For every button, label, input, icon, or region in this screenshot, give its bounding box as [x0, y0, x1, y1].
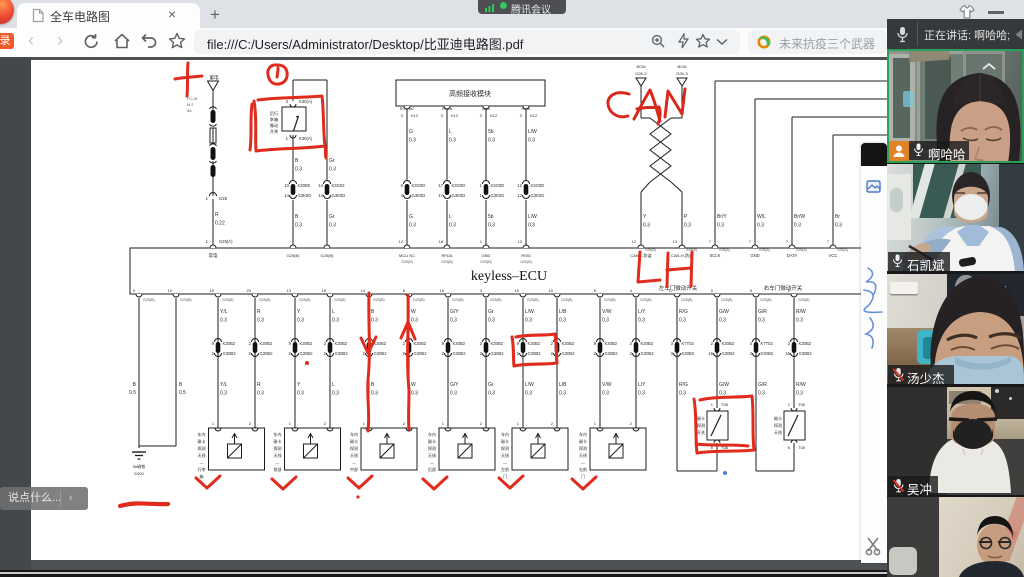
svg-text:G2E: G2E: [219, 196, 228, 201]
svg-text:13: 13: [673, 239, 678, 244]
svg-text:9: 9: [750, 288, 753, 293]
svg-text:0.3: 0.3: [758, 318, 765, 324]
svg-text:Y: Y: [643, 214, 647, 220]
svg-text:Y: Y: [297, 382, 301, 388]
svg-text:0.3: 0.3: [409, 138, 416, 144]
svg-text:Y: Y: [297, 309, 301, 315]
svg-text:G30B2: G30B2: [453, 351, 467, 356]
svg-text:K3G0D: K3G0D: [491, 183, 505, 188]
svg-text:K30B2: K30B2: [414, 341, 427, 346]
svg-text:前部: 前部: [274, 466, 282, 472]
svg-text:R/W: R/W: [796, 309, 806, 315]
svg-text:探测: 探测: [350, 445, 358, 451]
svg-text:1: 1: [206, 196, 209, 201]
svg-text:磁卡: 磁卡: [579, 438, 587, 444]
svg-text:0.3: 0.3: [450, 318, 457, 324]
svg-text:0.3: 0.3: [329, 167, 336, 173]
svg-text:3: 3: [520, 113, 523, 118]
svg-text:0.3: 0.3: [329, 223, 336, 229]
svg-text:L: L: [449, 129, 452, 135]
svg-text:V/W: V/W: [602, 309, 612, 315]
svg-text:1: 1: [480, 239, 483, 244]
svg-text:G30B2: G30B2: [641, 351, 655, 356]
svg-text:3: 3: [286, 99, 289, 104]
svg-text:0.3: 0.3: [684, 223, 691, 229]
svg-text:12: 12: [632, 239, 637, 244]
svg-text:G30B2: G30B2: [223, 351, 237, 356]
svg-text:磁卡: 磁卡: [774, 415, 782, 421]
svg-text:G25(B): G25(B): [180, 298, 192, 302]
svg-text:G25(B): G25(B): [401, 260, 413, 264]
svg-text:8: 8: [403, 288, 406, 293]
svg-text:G25(A): G25(A): [837, 248, 848, 252]
svg-text:G25(A): G25(A): [219, 239, 233, 244]
svg-text:G25(B): G25(B): [373, 298, 385, 302]
svg-text:0.5: 0.5: [179, 390, 186, 396]
svg-text:12: 12: [517, 183, 522, 188]
svg-text:G3K0D: G3K0D: [452, 193, 466, 198]
svg-text:G25(B): G25(B): [721, 298, 733, 302]
svg-text:K12: K12: [411, 113, 419, 118]
svg-text:14: 14: [284, 193, 289, 198]
svg-text:12: 12: [399, 239, 404, 244]
svg-text:T08: T08: [798, 402, 806, 407]
svg-text:0.3: 0.3: [525, 318, 532, 324]
svg-text:天线: 天线: [774, 429, 782, 435]
svg-text:0.3: 0.3: [643, 223, 650, 229]
svg-text:G25(A): G25(A): [719, 248, 730, 252]
svg-text:G30B2: G30B2: [335, 351, 349, 356]
svg-text:G25(B): G25(B): [520, 260, 532, 264]
svg-text:天线: 天线: [579, 452, 587, 458]
svg-text:K12: K12: [530, 113, 538, 118]
svg-text:K30B2: K30B2: [223, 341, 236, 346]
svg-text:Gr: Gr: [329, 214, 335, 220]
svg-text:后行: 后行: [270, 110, 278, 117]
svg-text:中部: 中部: [350, 466, 358, 472]
svg-text:GND: GND: [482, 253, 491, 258]
svg-text:7: 7: [827, 239, 830, 244]
svg-text:磁卡: 磁卡: [428, 438, 436, 444]
svg-text:RFDA: RFDA: [442, 253, 453, 258]
svg-text:K30B2: K30B2: [453, 341, 466, 346]
svg-text:K3G0D: K3G0D: [531, 183, 545, 188]
svg-text:G25(A): G25(A): [796, 248, 807, 252]
svg-text:R: R: [215, 212, 219, 218]
svg-text:3: 3: [480, 288, 483, 293]
svg-text:1: 1: [206, 239, 209, 244]
svg-text:0.3: 0.3: [449, 223, 456, 229]
svg-text:4: 4: [630, 288, 633, 293]
svg-text:天线: 天线: [198, 452, 206, 458]
svg-text:R/W: R/W: [796, 382, 806, 388]
svg-text:天线: 天线: [350, 452, 358, 458]
svg-text:L: L: [332, 382, 335, 388]
svg-text:5A: 5A: [187, 109, 192, 113]
svg-text:keyless–ECU: keyless–ECU: [471, 269, 547, 284]
svg-text:G30B2: G30B2: [528, 351, 542, 356]
svg-text:P: P: [684, 214, 688, 220]
svg-text:L/Y: L/Y: [638, 382, 646, 388]
svg-text:G25(B): G25(B): [640, 298, 652, 302]
svg-text:18: 18: [322, 288, 327, 293]
svg-text:6: 6: [788, 445, 791, 450]
svg-text:RSSI: RSSI: [521, 253, 530, 258]
svg-text:B: B: [371, 309, 375, 315]
svg-text:15: 15: [440, 288, 445, 293]
svg-text:G/Y: G/Y: [450, 382, 459, 388]
svg-text:17: 17: [438, 183, 443, 188]
svg-text:1: 1: [517, 421, 520, 426]
svg-text:开关: 开关: [697, 429, 705, 435]
svg-text:G: G: [409, 129, 413, 135]
svg-text:0.3: 0.3: [411, 391, 418, 397]
svg-text:0.3: 0.3: [409, 223, 416, 229]
svg-text:0.3: 0.3: [559, 318, 566, 324]
svg-text:1: 1: [594, 421, 597, 426]
svg-text:0.3: 0.3: [719, 391, 726, 397]
svg-text:DATA: DATA: [787, 253, 798, 258]
svg-text:Gr: Gr: [488, 309, 494, 315]
svg-text:G25(B): G25(B): [441, 260, 453, 264]
svg-text:左前: 左前: [501, 466, 509, 472]
svg-text:G30B2: G30B2: [374, 351, 388, 356]
svg-text:K30B0: K30B0: [298, 183, 311, 188]
svg-text:车内: 车内: [350, 431, 358, 437]
svg-text:B: B: [295, 158, 299, 164]
svg-text:—: —: [200, 460, 204, 465]
svg-text:K12: K12: [451, 113, 459, 118]
svg-text:0.3: 0.3: [295, 167, 302, 173]
svg-text:李箱: 李箱: [270, 116, 278, 123]
svg-text:K30B2: K30B2: [605, 341, 618, 346]
svg-text:2: 2: [403, 421, 406, 426]
svg-text:18: 18: [439, 239, 444, 244]
svg-text:13: 13: [287, 288, 292, 293]
svg-text:0.3: 0.3: [525, 391, 532, 397]
svg-text:R: R: [257, 309, 261, 315]
svg-text:5: 5: [711, 288, 714, 293]
svg-text:W: W: [411, 309, 416, 315]
svg-text:1: 1: [363, 421, 366, 426]
svg-text:2: 2: [249, 421, 252, 426]
svg-text:VCC: VCC: [829, 253, 838, 258]
svg-text:L/W: L/W: [525, 382, 534, 388]
svg-text:CAN-H-防盗: CAN-H-防盗: [671, 252, 693, 258]
svg-text:G25(B): G25(B): [287, 253, 301, 258]
svg-text:SCLK: SCLK: [710, 253, 721, 258]
svg-text:右前: 右前: [579, 466, 587, 472]
svg-text:0.3: 0.3: [297, 391, 304, 397]
svg-text:—: —: [581, 460, 585, 465]
svg-text:Br/Y: Br/Y: [717, 214, 727, 220]
svg-text:B: B: [371, 382, 375, 388]
svg-text:3: 3: [441, 113, 444, 118]
svg-text:1: 1: [442, 421, 445, 426]
svg-text:12: 12: [517, 193, 522, 198]
svg-text:W: W: [411, 382, 416, 388]
svg-text:G25(B): G25(B): [561, 298, 573, 302]
svg-text:Gr: Gr: [488, 382, 494, 388]
svg-text:K30B2: K30B2: [528, 341, 541, 346]
svg-text:—: —: [276, 460, 280, 465]
svg-text:探测: 探测: [697, 422, 705, 428]
svg-text:2: 2: [630, 421, 633, 426]
svg-text:R/G: R/G: [679, 309, 688, 315]
svg-text:E400: E400: [134, 471, 144, 476]
svg-text:0.3: 0.3: [449, 138, 456, 144]
svg-text:0.3: 0.3: [371, 318, 378, 324]
svg-text:车内: 车内: [579, 431, 587, 437]
svg-text:L/W: L/W: [528, 129, 537, 135]
svg-text:10: 10: [168, 288, 173, 293]
svg-text:FC-04: FC-04: [187, 97, 198, 101]
svg-text:磁卡: 磁卡: [274, 438, 282, 444]
svg-text:10: 10: [284, 183, 289, 188]
svg-text:K30B2: K30B2: [562, 341, 575, 346]
svg-text:天线: 天线: [274, 452, 282, 458]
svg-text:GND: GND: [750, 253, 759, 258]
svg-text:K3G0D: K3G0D: [452, 183, 466, 188]
svg-text:10: 10: [549, 288, 554, 293]
svg-text:G25(B): G25(B): [413, 298, 425, 302]
svg-text:5b: 5b: [488, 214, 494, 220]
svg-text:G25(B): G25(B): [681, 298, 693, 302]
svg-text:0.3: 0.3: [332, 318, 339, 324]
svg-text:G25(B): G25(B): [527, 298, 539, 302]
svg-text:0.3: 0.3: [796, 318, 803, 324]
svg-text:0.3: 0.3: [719, 318, 726, 324]
svg-text:G30B2: G30B2: [722, 351, 736, 356]
svg-text:—: —: [503, 460, 507, 465]
svg-text:W/L: W/L: [757, 214, 766, 220]
svg-text:K30(A): K30(A): [299, 136, 313, 141]
svg-text:0.3: 0.3: [794, 223, 801, 229]
svg-text:G25(B): G25(B): [143, 298, 155, 302]
svg-text:箱: 箱: [200, 473, 204, 479]
svg-text:磁卡: 磁卡: [350, 438, 358, 444]
svg-text:探测: 探测: [579, 445, 587, 451]
svg-text:G30B2: G30B2: [300, 351, 314, 356]
svg-text:17: 17: [438, 193, 443, 198]
svg-text:K12: K12: [490, 113, 498, 118]
svg-text:1: 1: [212, 421, 215, 426]
svg-text:0.3: 0.3: [835, 223, 842, 229]
svg-text:G2K-3: G2K-3: [676, 71, 688, 76]
svg-text:G/R: G/R: [758, 309, 767, 315]
svg-text:G25(B): G25(B): [645, 248, 656, 252]
svg-text:0.3: 0.3: [332, 391, 339, 397]
svg-text:13: 13: [518, 239, 523, 244]
svg-text:0.3: 0.3: [257, 318, 264, 324]
svg-text:G2K-2: G2K-2: [635, 71, 647, 76]
svg-text:G25(B): G25(B): [321, 253, 335, 258]
svg-text:车内: 车内: [274, 431, 282, 437]
svg-text:磁卡: 磁卡: [198, 438, 206, 444]
svg-text:L: L: [449, 214, 452, 220]
svg-text:20: 20: [247, 288, 252, 293]
svg-text:G25(B): G25(B): [259, 298, 271, 302]
svg-text:微动: 微动: [270, 122, 278, 129]
svg-text:R: R: [257, 382, 261, 388]
svg-text:G30B2: G30B2: [491, 351, 505, 356]
svg-text:0.3: 0.3: [638, 318, 645, 324]
svg-text:1: 1: [286, 136, 289, 141]
svg-text:8: 8: [594, 288, 597, 293]
svg-text:门: 门: [503, 473, 507, 479]
svg-text:T08: T08: [798, 445, 806, 450]
svg-text:G25(B): G25(B): [604, 298, 616, 302]
svg-text:常电: 常电: [209, 252, 218, 259]
svg-text:0.3: 0.3: [717, 223, 724, 229]
svg-text:Gr: Gr: [329, 158, 335, 164]
svg-text:探测: 探测: [274, 445, 282, 451]
svg-text:车内: 车内: [198, 431, 206, 437]
svg-text:G/W: G/W: [719, 309, 729, 315]
svg-text:高频接收模块: 高频接收模块: [449, 89, 491, 98]
svg-text:0.3: 0.3: [758, 391, 765, 397]
svg-text:蓄电: 蓄电: [210, 74, 219, 81]
svg-text:K30B2: K30B2: [641, 341, 654, 346]
svg-text:0.3: 0.3: [488, 138, 495, 144]
svg-text:天线: 天线: [501, 452, 509, 458]
svg-text:G/Y: G/Y: [450, 309, 459, 315]
svg-text:0.3: 0.3: [220, 318, 227, 324]
svg-text:19: 19: [210, 288, 215, 293]
svg-text:14: 14: [318, 193, 323, 198]
svg-text:L/W: L/W: [528, 214, 537, 220]
svg-text:探测: 探测: [198, 445, 206, 451]
svg-text:15: 15: [515, 288, 520, 293]
svg-text:G3K0D: G3K0D: [332, 193, 346, 198]
svg-text:G25(B): G25(B): [480, 260, 492, 264]
svg-text:G3K0D: G3K0D: [491, 193, 505, 198]
svg-text:后部: 后部: [428, 466, 436, 472]
svg-text:3: 3: [480, 113, 483, 118]
svg-text:0.3: 0.3: [757, 223, 764, 229]
svg-text:K30B2: K30B2: [722, 341, 735, 346]
svg-text:L/Y: L/Y: [638, 309, 646, 315]
svg-text:探测: 探测: [501, 445, 509, 451]
svg-text:K30B2: K30B2: [260, 341, 273, 346]
svg-text:车内: 车内: [428, 431, 436, 437]
svg-text:0.5: 0.5: [129, 390, 136, 396]
svg-text:L/B: L/B: [559, 309, 567, 315]
svg-text:磁卡: 磁卡: [501, 438, 509, 444]
svg-text:0.3: 0.3: [528, 138, 535, 144]
svg-text:G3K0D: G3K0D: [412, 193, 426, 198]
svg-text:K30B2: K30B2: [374, 341, 387, 346]
svg-text:B: B: [179, 382, 183, 388]
svg-text:0.3: 0.3: [488, 318, 495, 324]
svg-text:探测: 探测: [774, 422, 782, 428]
svg-text:0.3: 0.3: [371, 391, 378, 397]
svg-text:G25(B): G25(B): [334, 298, 346, 302]
svg-text:K3G0D: K3G0D: [412, 183, 426, 188]
svg-text:0.3: 0.3: [796, 391, 803, 397]
svg-text:G25(B): G25(B): [452, 298, 464, 302]
svg-text:0.3: 0.3: [488, 223, 495, 229]
svg-text:BCM: BCM: [637, 64, 646, 69]
svg-text:磁卡: 磁卡: [697, 415, 705, 421]
svg-text:G30B2: G30B2: [562, 351, 576, 356]
svg-text:5#磁铁: 5#磁铁: [133, 463, 145, 469]
svg-text:0.3: 0.3: [411, 318, 418, 324]
svg-text:2: 2: [324, 421, 327, 426]
svg-text:0.3: 0.3: [450, 391, 457, 397]
svg-text:G30B2: G30B2: [414, 351, 428, 356]
svg-text:0.3: 0.3: [528, 223, 535, 229]
svg-text:K30B2: K30B2: [335, 341, 348, 346]
svg-text:7: 7: [786, 239, 789, 244]
svg-text:K3G02: K3G02: [332, 183, 346, 188]
svg-text:14: 14: [361, 288, 366, 293]
svg-text:3: 3: [401, 113, 404, 118]
svg-text:14: 14: [318, 183, 323, 188]
svg-text:9: 9: [133, 288, 136, 293]
svg-text:16: 16: [708, 351, 713, 356]
svg-text:门: 门: [581, 473, 585, 479]
svg-text:—: —: [430, 460, 434, 465]
svg-text:1: 1: [289, 421, 292, 426]
svg-text:Br: Br: [835, 214, 840, 220]
svg-text:1: 1: [788, 402, 791, 407]
svg-text:0.3: 0.3: [602, 391, 609, 397]
svg-text:7: 7: [709, 239, 712, 244]
svg-text:L/W: L/W: [525, 309, 534, 315]
svg-text:0.3: 0.3: [297, 318, 304, 324]
svg-text:T08: T08: [721, 402, 729, 407]
svg-text:0.3: 0.3: [559, 391, 566, 397]
svg-text:L: L: [332, 309, 335, 315]
svg-text:0.22: 0.22: [215, 221, 225, 227]
svg-text:BCM: BCM: [678, 64, 687, 69]
svg-text:Br/W: Br/W: [794, 214, 805, 220]
svg-text:16: 16: [785, 351, 790, 356]
svg-text:B: B: [133, 382, 137, 388]
svg-text:K7T02: K7T02: [761, 341, 774, 346]
svg-text:G25(B): G25(B): [490, 298, 502, 302]
svg-text:G3K0D: G3K0D: [531, 193, 545, 198]
svg-text:0.3: 0.3: [295, 223, 302, 229]
svg-text:G/W: G/W: [719, 382, 729, 388]
svg-text:G: G: [409, 214, 413, 220]
svg-text:0.3: 0.3: [679, 391, 686, 397]
svg-text:G25(A): G25(A): [759, 248, 770, 252]
svg-text:G25(B): G25(B): [299, 298, 311, 302]
svg-text:2: 2: [551, 421, 554, 426]
svg-text:G30B2: G30B2: [260, 351, 274, 356]
svg-text:K30B2: K30B2: [300, 341, 313, 346]
svg-text:L/B: L/B: [559, 382, 567, 388]
svg-text:0.3: 0.3: [220, 391, 227, 397]
svg-text:G3K0D: G3K0D: [298, 193, 312, 198]
svg-text:7: 7: [749, 239, 752, 244]
svg-text:B: B: [295, 214, 299, 220]
svg-text:K30(A): K30(A): [299, 99, 313, 104]
svg-text:K30B2: K30B2: [799, 341, 812, 346]
svg-text:R/G: R/G: [679, 382, 688, 388]
svg-text:探测: 探测: [428, 445, 436, 451]
svg-text:Y/L: Y/L: [220, 382, 228, 388]
svg-text:0.3: 0.3: [638, 391, 645, 397]
svg-text:0.3: 0.3: [488, 391, 495, 397]
svg-text:2: 2: [480, 421, 483, 426]
svg-text:MCU NC: MCU NC: [399, 253, 415, 258]
svg-text:0.3: 0.3: [257, 391, 264, 397]
svg-text:G25(B): G25(B): [798, 298, 810, 302]
svg-text:车内: 车内: [501, 431, 509, 437]
